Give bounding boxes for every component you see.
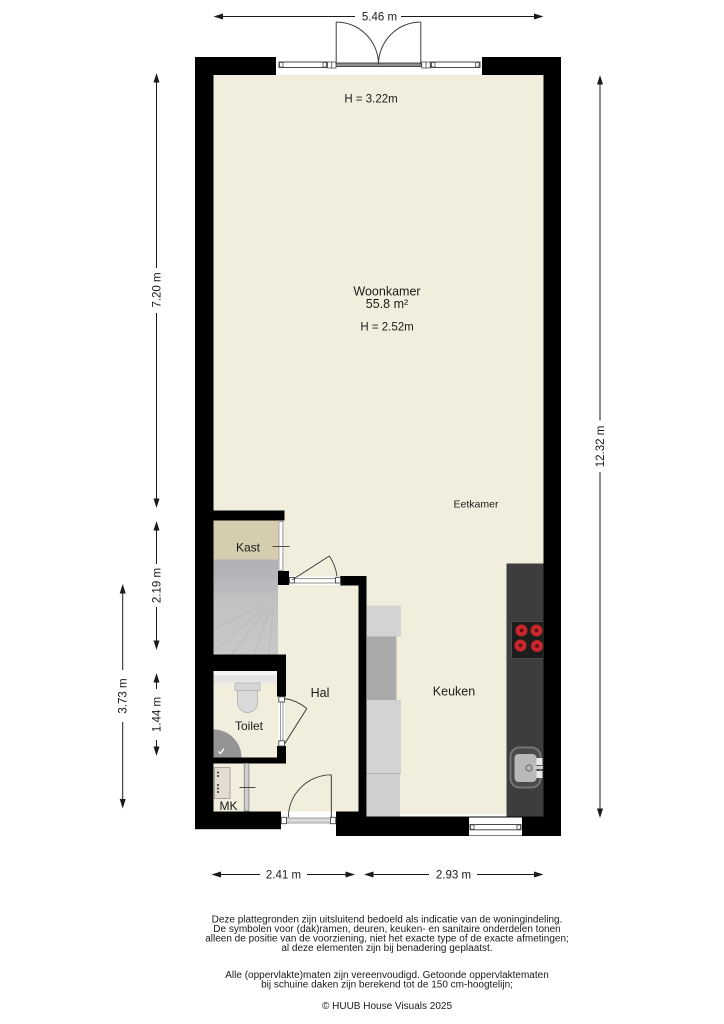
svg-text:55.8 m²: 55.8 m² [366,297,408,311]
svg-text:Hal: Hal [311,686,330,700]
svg-text:H = 2.52m: H = 2.52m [360,322,413,334]
svg-text:© HUUB House Visuals 2025: © HUUB House Visuals 2025 [322,1001,452,1012]
svg-text:Eetkamer: Eetkamer [454,499,499,511]
svg-text:MK: MK [220,799,238,813]
svg-text:H = 3.22m: H = 3.22m [344,94,397,106]
svg-text:12.32 m: 12.32 m [595,426,607,468]
svg-text:bij schuine daken zijn bereken: bij schuine daken zijn berekend tot de 1… [261,980,513,991]
svg-text:2.93 m: 2.93 m [436,870,471,882]
svg-text:Kast: Kast [236,541,261,555]
svg-text:1.44 m: 1.44 m [152,697,164,732]
svg-text:Keuken: Keuken [433,685,475,699]
svg-text:al deze elementen zijn bij ben: al deze elementen zijn bij benadering ge… [281,943,492,954]
svg-text:2.19 m: 2.19 m [152,568,164,603]
svg-text:2.41 m: 2.41 m [266,870,301,882]
svg-text:3.73 m: 3.73 m [118,678,130,713]
svg-text:5.46 m: 5.46 m [362,12,397,24]
svg-text:7.20 m: 7.20 m [152,272,164,307]
svg-text:Toilet: Toilet [235,719,264,733]
